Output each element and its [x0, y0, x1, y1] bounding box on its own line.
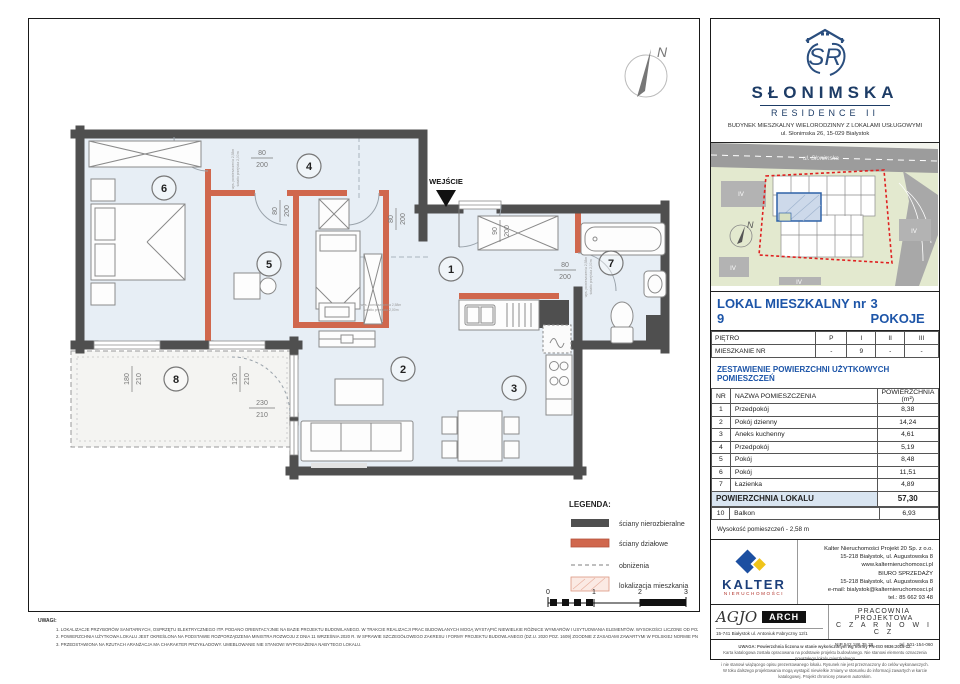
legend-title: LEGENDA:	[569, 500, 611, 509]
area-name: Przedpokój	[730, 404, 877, 417]
unit-rooms: 3 POKOJE	[871, 296, 933, 326]
floor-table-cell: III	[905, 332, 939, 345]
svg-text:2: 2	[400, 364, 406, 376]
info-panel: SR SŁONIMSKA RESIDENCE II BUDYNEK MIESZK…	[710, 18, 940, 660]
arch-badge: ARCH	[762, 611, 806, 623]
legend-item: ściany działowe	[619, 541, 668, 548]
areas-table: NR NAZWA POMIESZCZENIA POWIERZCHNIA (m²)…	[711, 388, 939, 507]
floor-plan-panel: WEJŚCIE 80 200 80 200 90 200 80 200 80 2…	[28, 18, 700, 612]
area-nr: 5	[712, 454, 731, 467]
svg-text:80: 80	[258, 150, 266, 157]
area-name: Łazienka	[730, 479, 877, 492]
svg-text:200: 200	[504, 225, 511, 237]
svg-text:4: 4	[306, 161, 313, 173]
kalter-sub: NIERUCHOMOŚCI	[724, 591, 784, 596]
svg-text:wys. pomieszczenia 2,58m: wys. pomieszczenia 2,58m	[584, 257, 588, 298]
shaft	[646, 315, 669, 345]
area-nr: 4	[712, 441, 731, 454]
total-label: POWIERZCHNIA LOKALU	[712, 491, 878, 506]
uwagi-notes: UWAGI: 1. LOKALIZACJE PRZYBORÓW SANITARN…	[38, 618, 698, 647]
ceiling-note-2: wys. pomieszczenia 2,58m światło przejśc…	[361, 303, 402, 312]
areas-header-area: POWIERZCHNIA (m²)	[877, 389, 939, 404]
map-building-label: IV	[911, 229, 917, 235]
area-value: 8,38	[877, 404, 939, 417]
svg-text:wys. pomieszczenia 2,58m: wys. pomieszczenia 2,58m	[231, 149, 235, 190]
svg-text:światło przejścia 2,00m: światło przejścia 2,00m	[363, 308, 398, 312]
balcony	[71, 351, 293, 447]
svg-text:200: 200	[400, 213, 407, 225]
north-arrow-icon: N	[625, 44, 668, 97]
brand-divider	[760, 105, 890, 106]
balcony-table: 10 Balkon 6,93	[711, 507, 939, 521]
fine-print-line: Karta katalogowa została opracowana na p…	[717, 650, 933, 662]
brand-name: SŁONIMSKA	[715, 83, 935, 103]
svg-text:wys. pomieszczenia 2,58m: wys. pomieszczenia 2,58m	[361, 303, 402, 307]
area-value: 8,48	[877, 454, 939, 467]
site-map: ul. Słonimska IV IV IV IV	[711, 142, 939, 292]
area-nr: 2	[712, 416, 731, 429]
areas-title: ZESTAWIENIE POWIERZCHNI UŻYTKOWYCH POMIE…	[711, 358, 939, 388]
area-value: 4,61	[877, 429, 939, 442]
floor-table-cell: -	[876, 345, 905, 358]
area-nr: 10	[712, 507, 730, 520]
svg-text:7: 7	[608, 258, 614, 270]
map-building-label: IV	[738, 192, 744, 198]
svg-text:8: 8	[173, 374, 179, 386]
svg-text:80: 80	[272, 207, 279, 215]
legend-item: ściany nierozbieralne	[619, 521, 685, 528]
studio-name-line1: PRACOWNIA PROJEKTOWA	[833, 608, 935, 622]
legend-item: obniżenia	[619, 563, 649, 570]
floor-plan-drawing: WEJŚCIE 80 200 80 200 90 200 80 200 80 2…	[29, 19, 698, 610]
brand-subname: RESIDENCE II	[715, 108, 935, 118]
fridge-block	[539, 300, 569, 328]
map-building-label: IV	[796, 280, 802, 286]
area-value: 5,19	[877, 441, 939, 454]
kalter-line: Kalter Nieruchomości Projekt 20 Sp. z o.…	[804, 545, 933, 553]
floor-table-cell: P	[816, 332, 847, 345]
svg-text:90: 90	[492, 227, 499, 235]
agjo-logo: AGJO	[716, 608, 757, 626]
svg-text:120: 120	[232, 373, 239, 385]
area-row: 4 Przedpokój 5,19	[712, 441, 939, 454]
total-value: 57,30	[877, 491, 939, 506]
sr-logo-icon: SR	[794, 26, 856, 76]
kalter-line: www.kalternieruchomosci.pl	[804, 561, 933, 569]
svg-text:1: 1	[448, 264, 454, 276]
area-name: Pokój	[730, 454, 877, 467]
brand-header: SR SŁONIMSKA RESIDENCE II BUDYNEK MIESZK…	[711, 19, 939, 142]
fine-print: UWAGA: Powierzchnia liczona w stanie wyk…	[711, 639, 939, 684]
floor-table-cell: PIĘTRO	[712, 332, 816, 345]
kalter-line: e-mail: bialystok@kalternieruchomosci.pl	[804, 586, 933, 594]
area-nr: 7	[712, 479, 731, 492]
floor-table-cell: I	[847, 332, 876, 345]
note-item: 3. PRZEDSTAWIONA NA RZUTACH ARANŻACJA MA…	[38, 642, 698, 647]
area-nr: 6	[712, 466, 731, 479]
height-note: Wysokość pomieszczeń - 2,58 m	[711, 520, 939, 539]
svg-text:200: 200	[256, 162, 268, 169]
designers-block: AGJO ARCH 15-741 Białystok ul. Antoniuk …	[711, 604, 939, 639]
sr-monogram: SR	[808, 44, 841, 71]
kalter-brand: KALTER	[722, 579, 786, 591]
scale-bar: 0 1 2 3	[546, 589, 688, 607]
areas-header-nr: NR	[712, 389, 731, 404]
map-building-label: IV	[730, 266, 736, 272]
kalter-contact: KALTER NIERUCHOMOŚCI Kalter Nieruchomośc…	[711, 539, 939, 604]
studio-name-line2: C Z A R N O W I C Z	[833, 622, 935, 636]
brand-desc-line1: BUDYNEK MIESZKALNY WIELORODZINNY Z LOKAL…	[715, 122, 935, 130]
floor-table-cell: MIESZKANIE NR	[712, 345, 816, 358]
floor-table-cell: -	[816, 345, 847, 358]
ceiling-note-3: wys. pomieszczenia 2,58m światło przejśc…	[584, 257, 593, 298]
area-value: 14,24	[877, 416, 939, 429]
brand-desc-line2: ul. Słonimska 26, 15-029 Białystok	[715, 130, 935, 138]
legend-swatch-structural	[571, 519, 609, 527]
svg-text:200: 200	[559, 274, 571, 281]
area-value: 4,89	[877, 479, 939, 492]
area-row: 1 Przedpokój 8,38	[712, 404, 939, 417]
svg-text:1: 1	[592, 589, 596, 596]
area-name: Aneks kuchenny	[730, 429, 877, 442]
note-item: 1. LOKALIZACJE PRZYBORÓW SANITARNYCH, OS…	[38, 627, 698, 632]
fine-print-line: W toku dalszego projektowania mogą wystą…	[717, 668, 933, 680]
area-nr: 1	[712, 404, 731, 417]
entrance-label: WEJŚCIE	[429, 177, 463, 186]
svg-text:6: 6	[161, 183, 167, 195]
area-value: 6,93	[879, 507, 938, 520]
kalter-logo-icon	[731, 549, 777, 579]
floor-table-cell: 9	[847, 345, 876, 358]
legend-swatch-partition	[571, 539, 609, 547]
area-row: 2 Pokój dzienny 14,24	[712, 416, 939, 429]
svg-text:210: 210	[256, 412, 268, 419]
area-row: 7 Łazienka 4,89	[712, 479, 939, 492]
svg-text:światło przejścia 2,00m: światło przejścia 2,00m	[589, 259, 593, 294]
ceiling-note-1: wys. pomieszczenia 2,58m światło przejśc…	[231, 149, 240, 190]
areas-header-name: NAZWA POMIESZCZENIA	[730, 389, 877, 404]
notes-title: UWAGI:	[38, 618, 698, 624]
note-item: 2. POWIERZCHNIA UŻYTKOWA LOKALU JEST OKR…	[38, 634, 698, 639]
svg-text:180: 180	[124, 373, 131, 385]
area-name: Pokój dzienny	[730, 416, 877, 429]
area-row: 3 Aneks kuchenny 4,61	[712, 429, 939, 442]
svg-text:230: 230	[256, 400, 268, 407]
svg-text:210: 210	[244, 373, 251, 385]
svg-text:0: 0	[546, 589, 550, 596]
kalter-line: BIURO SPRZEDAŻY	[804, 570, 933, 578]
svg-text:80: 80	[388, 215, 395, 223]
plan-legend: LEGENDA: ściany nierozbieralne ściany dz…	[569, 500, 688, 591]
area-value: 11,51	[877, 466, 939, 479]
floor-table-cell: -	[905, 345, 939, 358]
svg-text:3: 3	[684, 589, 688, 596]
map-street-label: ul. Słonimska	[803, 156, 839, 162]
area-row: 10 Balkon 6,93	[712, 507, 939, 520]
entrance-marker: WEJŚCIE	[429, 177, 463, 207]
area-name: Pokój	[730, 466, 877, 479]
area-row: 5 Pokój 8,48	[712, 454, 939, 467]
floor-table: PIĘTRO P I II III MIESZKANIE NR - 9 - -	[711, 331, 939, 358]
unit-title: LOKAL MIESZKALNY nr 9	[717, 296, 871, 326]
area-nr: 3	[712, 429, 731, 442]
kalter-line: tel.: 85 662 93 48	[804, 594, 933, 602]
svg-text:3: 3	[511, 383, 517, 395]
svg-text:210: 210	[136, 373, 143, 385]
agjo-address: 15-741 Białystok ul. Antoniuk Fabryczny …	[716, 628, 823, 636]
legend-item: lokalizacja mieszkania	[619, 583, 688, 590]
kalter-line: 15-218 Białystok, ul. Augustowska 8	[804, 578, 933, 586]
svg-text:200: 200	[284, 205, 291, 217]
area-row: 6 Pokój 11,51	[712, 466, 939, 479]
map-unit-highlight	[777, 193, 821, 221]
svg-text:80: 80	[561, 262, 569, 269]
entrance-arrow-icon	[436, 190, 456, 207]
map-north-label: N	[747, 220, 754, 230]
svg-text:światło przejścia 2,00m: światło przejścia 2,00m	[236, 151, 240, 186]
floor-table-cell: II	[876, 332, 905, 345]
total-row: POWIERZCHNIA LOKALU 57,30	[712, 491, 939, 506]
svg-text:5: 5	[266, 259, 272, 271]
kalter-line: 15-218 Białystok, ul. Augustowska 8	[804, 553, 933, 561]
svg-text:2: 2	[638, 589, 642, 596]
area-name: Balkon	[730, 507, 880, 520]
unit-header: LOKAL MIESZKALNY nr 9 3 POKOJE	[711, 292, 939, 331]
area-name: Przedpokój	[730, 441, 877, 454]
north-label: N	[657, 44, 668, 60]
